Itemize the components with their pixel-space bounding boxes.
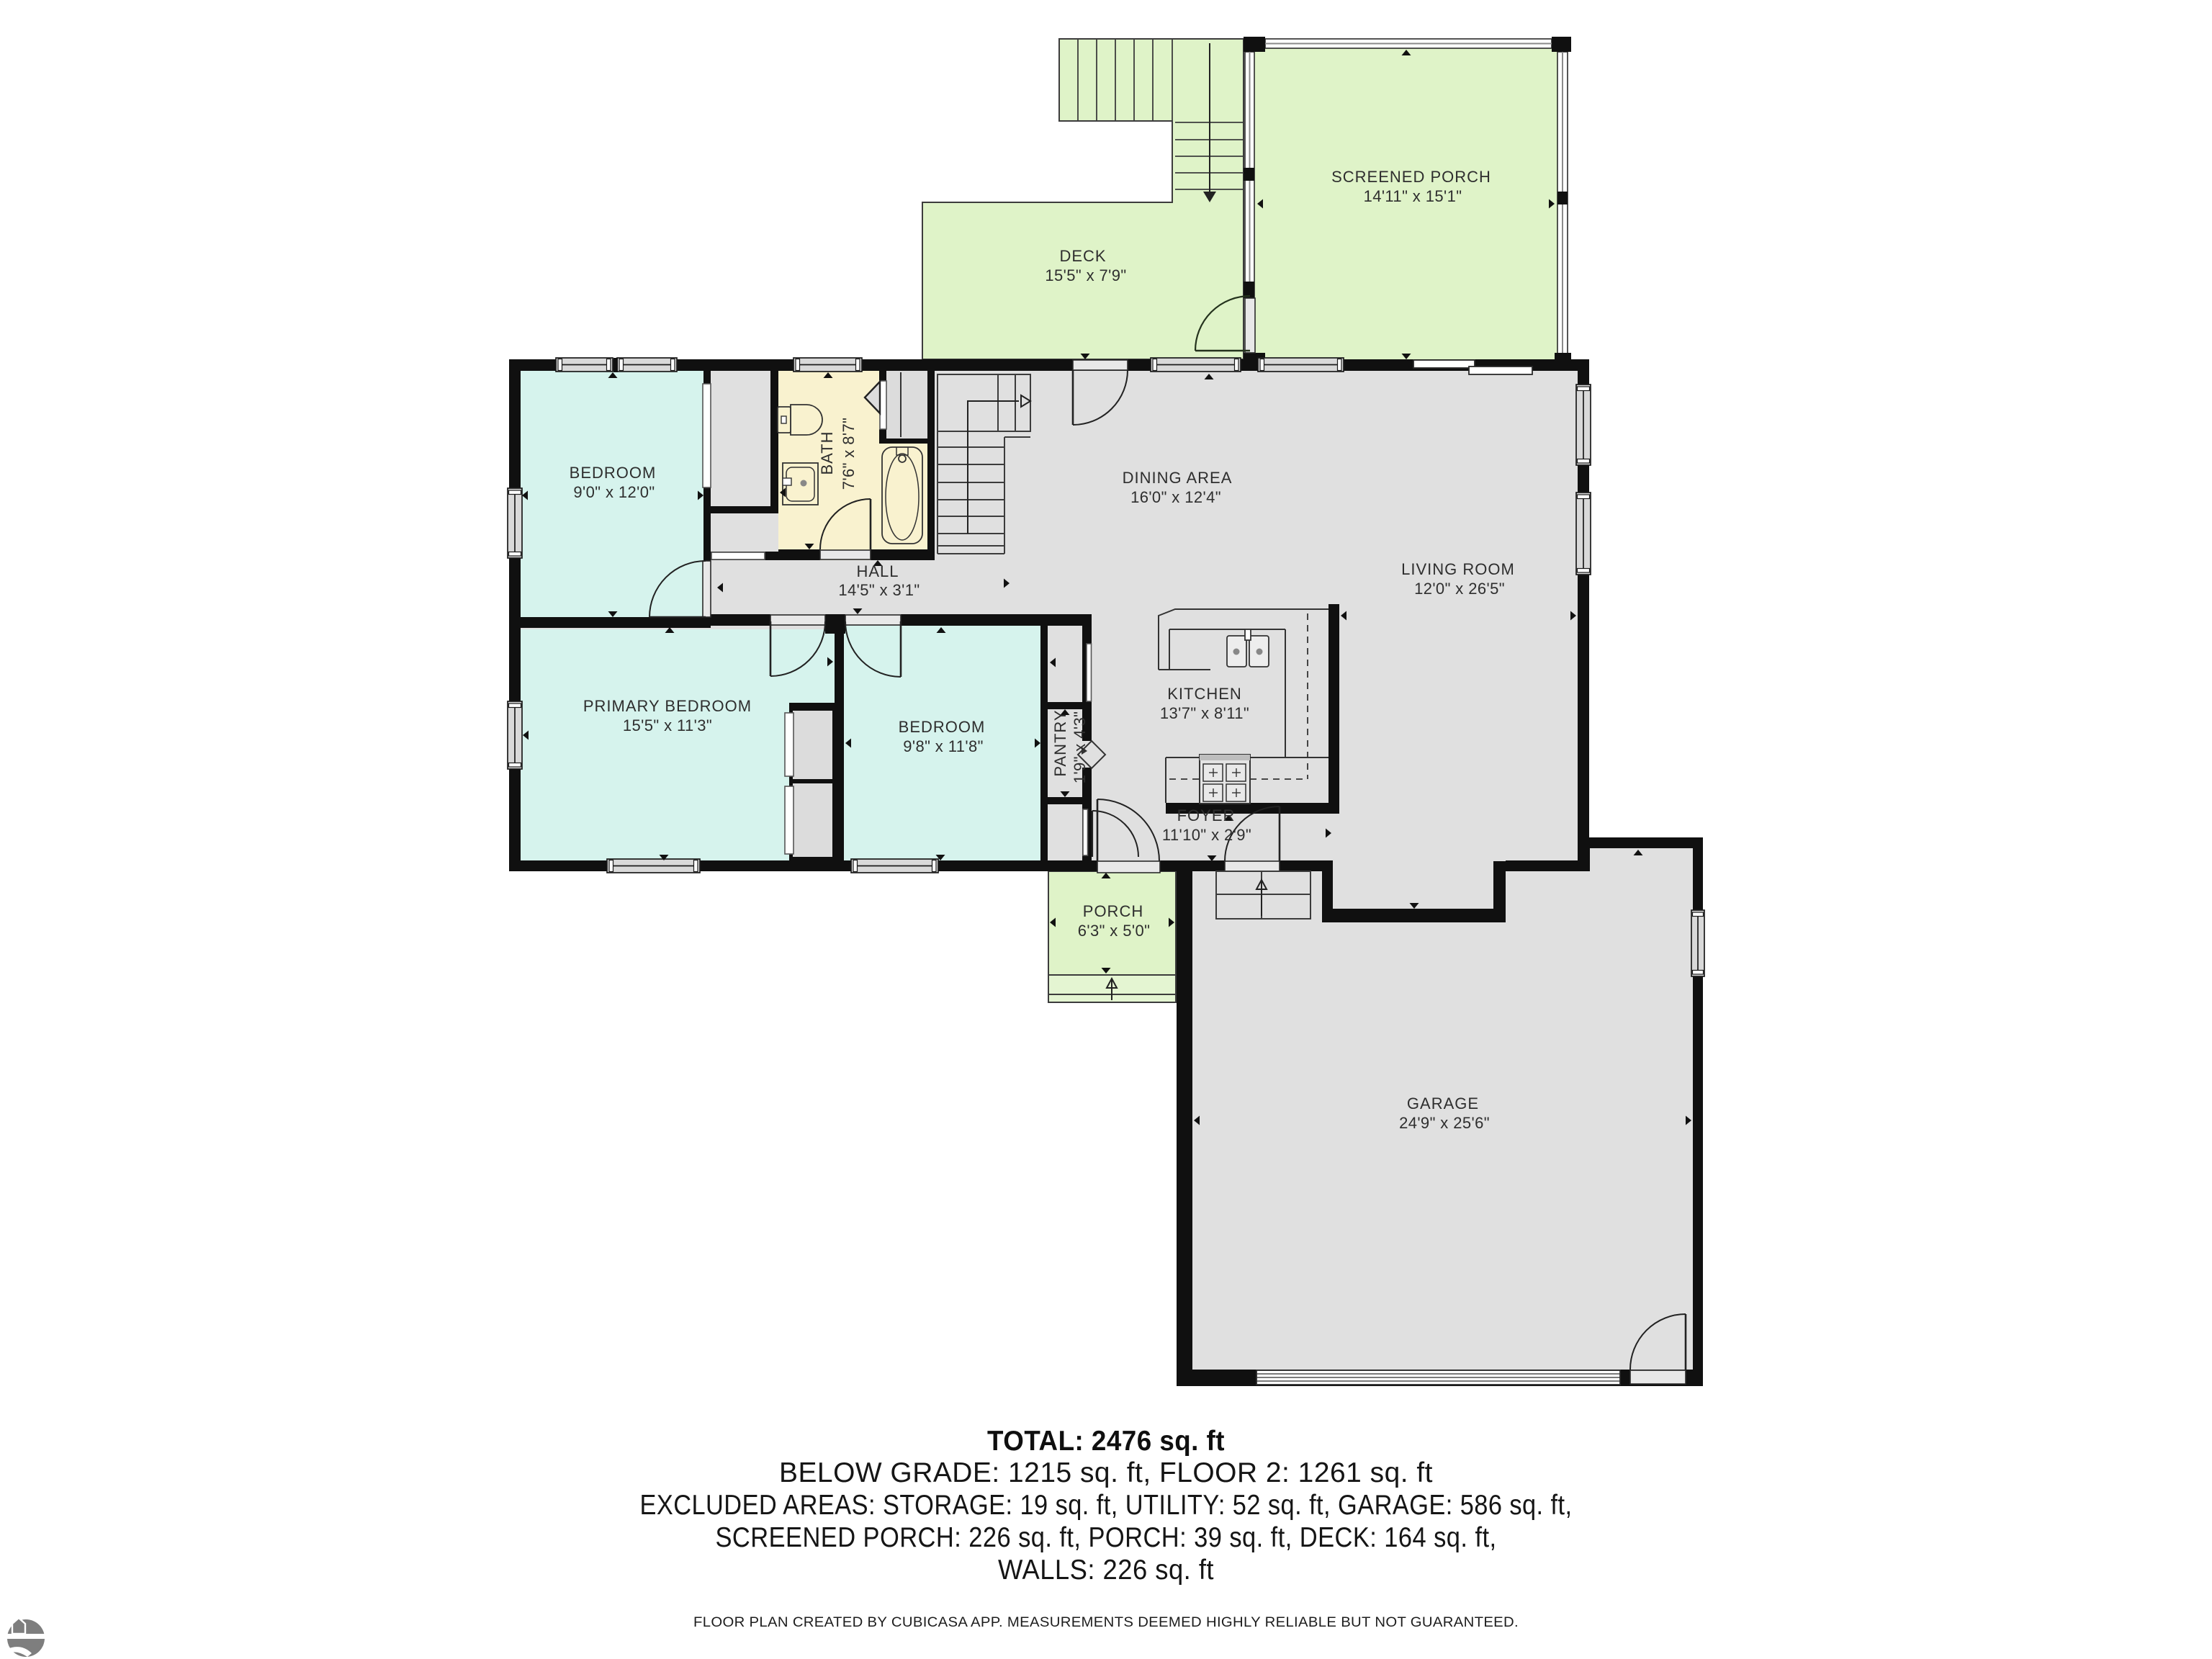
- svg-text:PANTRY: PANTRY: [1051, 709, 1069, 776]
- svg-text:14'5" x 3'1": 14'5" x 3'1": [838, 581, 920, 599]
- svg-text:SCREENED PORCH: SCREENED PORCH: [1331, 168, 1491, 186]
- svg-text:DECK: DECK: [1059, 247, 1106, 265]
- svg-text:9'8" x 11'8": 9'8" x 11'8": [903, 737, 984, 755]
- svg-text:LIVING ROOM: LIVING ROOM: [1401, 560, 1515, 578]
- svg-text:BATH: BATH: [818, 431, 836, 475]
- svg-text:1'9" x 4'3": 1'9" x 4'3": [1071, 711, 1089, 784]
- svg-text:KITCHEN: KITCHEN: [1167, 685, 1242, 703]
- svg-text:14'11" x 15'1": 14'11" x 15'1": [1364, 187, 1462, 205]
- svg-text:PRIMARY BEDROOM: PRIMARY BEDROOM: [583, 697, 752, 715]
- svg-text:12'0" x 26'5": 12'0" x 26'5": [1414, 580, 1505, 598]
- svg-text:BEDROOM: BEDROOM: [570, 464, 657, 482]
- svg-text:7'6" x 8'7": 7'6" x 8'7": [840, 418, 858, 490]
- svg-text:FLOOR PLAN CREATED BY CUBICASA: FLOOR PLAN CREATED BY CUBICASA APP. MEAS…: [693, 1615, 1519, 1630]
- svg-text:BEDROOM: BEDROOM: [899, 718, 986, 736]
- svg-text:GARAGE: GARAGE: [1407, 1094, 1479, 1112]
- svg-text:BELOW GRADE: 1215 sq. ft, FLOO: BELOW GRADE: 1215 sq. ft, FLOOR 2: 1261 …: [779, 1457, 1433, 1488]
- svg-text:13'7" x 8'11": 13'7" x 8'11": [1160, 704, 1249, 722]
- svg-text:15'5" x 7'9": 15'5" x 7'9": [1045, 266, 1126, 284]
- svg-text:15'5" x 11'3": 15'5" x 11'3": [623, 716, 712, 734]
- svg-text:HALL: HALL: [856, 562, 899, 580]
- svg-text:DINING AREA: DINING AREA: [1123, 469, 1233, 487]
- svg-text:TOTAL: 2476 sq. ft: TOTAL: 2476 sq. ft: [987, 1426, 1225, 1457]
- svg-text:6'3" x 5'0": 6'3" x 5'0": [1078, 922, 1151, 940]
- svg-text:FOYER: FOYER: [1177, 806, 1236, 824]
- svg-text:9'0" x 12'0": 9'0" x 12'0": [573, 483, 655, 501]
- svg-text:EXCLUDED AREAS: STORAGE: 19 sq: EXCLUDED AREAS: STORAGE: 19 sq. ft, UTIL…: [640, 1490, 1573, 1521]
- svg-text:PORCH: PORCH: [1083, 902, 1143, 920]
- svg-text:WALLS: 226 sq. ft: WALLS: 226 sq. ft: [998, 1555, 1214, 1586]
- svg-text:16'0" x 12'4": 16'0" x 12'4": [1130, 488, 1221, 506]
- svg-text:11'10" x 2'9": 11'10" x 2'9": [1162, 826, 1251, 844]
- svg-text:SCREENED PORCH: 226 sq. ft, PO: SCREENED PORCH: 226 sq. ft, PORCH: 39 sq…: [716, 1522, 1497, 1553]
- svg-text:24'9" x 25'6": 24'9" x 25'6": [1399, 1114, 1490, 1132]
